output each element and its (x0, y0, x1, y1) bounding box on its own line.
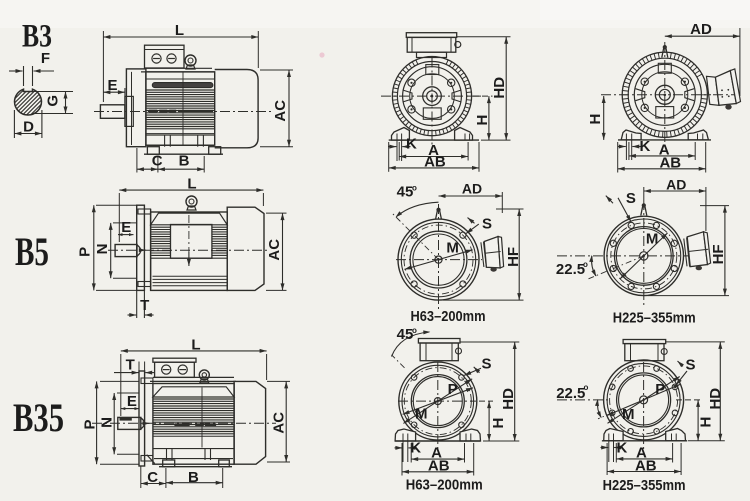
svg-text:M: M (622, 406, 635, 423)
svg-text:45: 45 (397, 184, 414, 201)
svg-text:M: M (446, 240, 459, 257)
svg-text:AC: AC (271, 412, 288, 434)
svg-text:L: L (187, 176, 196, 193)
svg-text:M: M (415, 406, 428, 423)
svg-text:P: P (655, 381, 665, 398)
svg-text:H: H (474, 115, 491, 126)
svg-text:HD: HD (491, 77, 508, 99)
svg-text:HD: HD (500, 388, 517, 410)
svg-text:B: B (179, 153, 190, 170)
svg-text:F: F (41, 50, 50, 67)
svg-text:L: L (191, 337, 200, 354)
svg-text:HD: HD (707, 388, 724, 410)
svg-text:K: K (410, 440, 421, 457)
svg-text:AC: AC (272, 100, 289, 122)
svg-text:D: D (23, 119, 34, 136)
svg-text:P: P (82, 419, 99, 429)
svg-text:N: N (94, 244, 111, 255)
svg-text:AB: AB (424, 154, 446, 171)
svg-text:T: T (140, 297, 149, 314)
svg-text:S: S (482, 216, 492, 233)
svg-text:L: L (175, 22, 184, 39)
svg-text:H: H (697, 417, 714, 428)
svg-text:o: o (584, 383, 589, 392)
svg-text:S: S (626, 190, 636, 207)
svg-text:T: T (126, 357, 135, 374)
svg-text:G: G (45, 95, 62, 107)
svg-text:o: o (583, 260, 588, 269)
svg-text:H225–355mm: H225–355mm (613, 309, 696, 326)
svg-text:AD: AD (666, 176, 686, 192)
svg-text:B35: B35 (13, 395, 64, 440)
svg-text:M: M (646, 231, 659, 248)
svg-text:H: H (490, 418, 507, 429)
svg-text:K: K (616, 440, 627, 457)
svg-text:C: C (147, 469, 158, 486)
svg-text:22.5: 22.5 (556, 261, 585, 278)
svg-text:H: H (587, 114, 604, 125)
svg-text:22.5: 22.5 (556, 385, 585, 402)
svg-text:AB: AB (428, 458, 450, 475)
svg-text:AB: AB (635, 457, 657, 474)
svg-text:P: P (77, 247, 94, 257)
svg-text:H63–200mm: H63–200mm (406, 477, 483, 494)
svg-text:S: S (481, 356, 491, 373)
svg-text:H63–200mm: H63–200mm (411, 308, 486, 325)
svg-text:N: N (99, 417, 116, 428)
svg-text:AB: AB (659, 155, 681, 172)
svg-text:H225–355mm: H225–355mm (603, 477, 686, 494)
svg-text:AD: AD (690, 21, 712, 38)
svg-text:C: C (152, 153, 163, 170)
svg-text:o: o (412, 326, 417, 335)
svg-text:K: K (639, 138, 650, 155)
svg-text:K: K (406, 135, 417, 152)
svg-text:AC: AC (266, 239, 283, 261)
svg-text:B: B (188, 469, 199, 486)
svg-text:o: o (412, 184, 417, 193)
svg-text:HF: HF (710, 244, 727, 264)
svg-text:HF: HF (505, 247, 522, 267)
svg-text:45: 45 (397, 326, 414, 343)
svg-text:B5: B5 (15, 229, 49, 274)
svg-text:AD: AD (462, 181, 482, 197)
